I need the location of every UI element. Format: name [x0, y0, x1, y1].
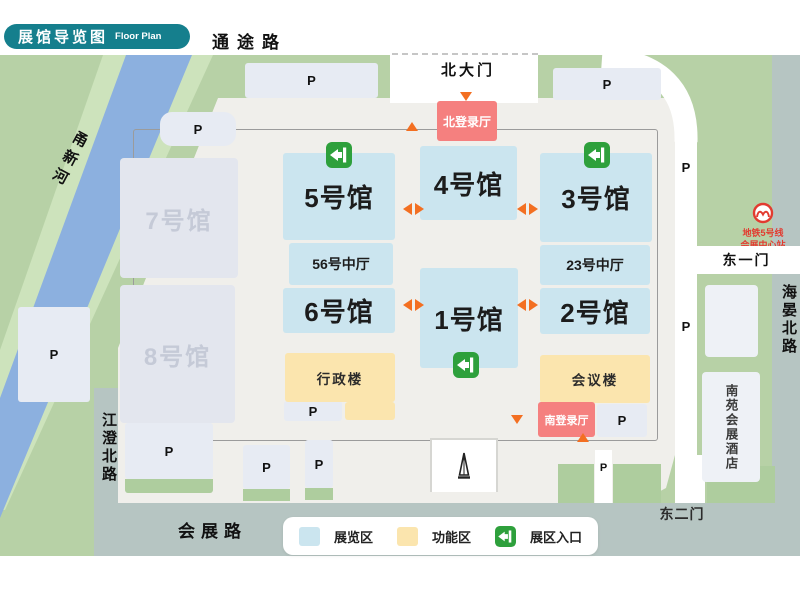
south-parking-strip [595, 450, 612, 503]
page-title: 展馆导览图 [18, 26, 108, 47]
gate-east1-label: 东一门 [723, 250, 771, 270]
arrow-left-icon [517, 299, 526, 311]
arrow-up-south-exit-icon [577, 433, 589, 442]
flow-arrow-6-1 [403, 299, 424, 311]
legend: 展览区 功能区 展区入口 [283, 517, 598, 555]
parking-lot: P [597, 404, 647, 437]
gate-north-label: 北大门 [430, 60, 506, 78]
arrow-right-icon [415, 299, 424, 311]
parking-label-south-strip: P [595, 460, 612, 476]
north-gate-dashed-line [392, 53, 538, 55]
tower-icon [455, 451, 473, 481]
parking-lot: P [284, 401, 342, 421]
parking-label: P [315, 457, 324, 472]
road-south-label: 会展路 [178, 517, 247, 542]
conference-building: 会议楼 [540, 355, 650, 403]
parking-label: P [50, 347, 59, 362]
road-north-label: 通途路 [212, 28, 287, 53]
admin-building: 行政楼 [285, 353, 395, 402]
hall-8: 8号馆 [120, 285, 235, 423]
parking-lot: P [245, 63, 378, 98]
admin-building-ext [345, 402, 395, 420]
hotel-building: 南苑会展酒店 [702, 372, 760, 482]
parking-label-east-north: P [677, 158, 695, 176]
tower-landmark-box [430, 438, 498, 492]
arrow-right-icon [415, 203, 424, 215]
parking-label: P [262, 460, 271, 475]
parking-label-east-south: P [677, 317, 695, 335]
hall-4: 4号馆 [420, 146, 517, 220]
arrow-right-icon [529, 203, 538, 215]
parking-label: P [307, 73, 316, 88]
legend-entrance-icon [495, 526, 516, 547]
arrow-left-icon [403, 203, 412, 215]
flow-arrow-1-2 [517, 299, 538, 311]
entrance-icon-hall3 [584, 142, 610, 168]
parking-green-edge [125, 479, 213, 493]
metro-line: 地铁5号线 [726, 227, 800, 239]
legend-exhibition-label: 展览区 [334, 527, 373, 546]
parking-lot: P [305, 440, 333, 488]
legend-entrance-label: 展区入口 [530, 527, 582, 546]
title-banner: 展馆导览图 Floor Plan [4, 24, 190, 49]
arrow-down-south-entry-icon [511, 415, 523, 424]
green-patch-1 [558, 464, 594, 503]
parking-label: P [194, 122, 203, 137]
hall-56-atrium: 56号中厅 [289, 243, 393, 285]
parking-label: P [309, 404, 318, 419]
floor-plan-map: P P P P P P P P P P P P 7号馆 8号馆 5号馆 56号中… [0, 0, 800, 600]
arrow-left-icon [403, 299, 412, 311]
metro-logo-icon [752, 202, 774, 224]
parking-green-edge [305, 488, 333, 500]
parking-label: P [165, 444, 174, 459]
hall-23-atrium: 23号中厅 [540, 245, 650, 285]
gate-east2-label: 东二门 [656, 505, 708, 523]
legend-function-swatch [397, 527, 418, 546]
flow-arrow-4-3 [517, 203, 538, 215]
hall-6: 6号馆 [283, 288, 395, 333]
arrow-down-north-entry-icon [460, 92, 472, 101]
parking-lot: P [553, 68, 661, 100]
parking-lot: P [243, 445, 290, 489]
road-west-label: 江澄北路 [98, 412, 119, 484]
parking-lot: P [125, 423, 213, 479]
arrow-up-north-exit-icon [406, 122, 418, 131]
hotel-annex [705, 285, 758, 357]
legend-exhibition-swatch [299, 527, 320, 546]
north-registration-hall: 北登录厅 [437, 101, 497, 141]
hall-2: 2号馆 [540, 288, 650, 334]
parking-lot: P [18, 307, 90, 402]
entrance-icon-hall5 [326, 142, 352, 168]
legend-function-label: 功能区 [432, 527, 471, 546]
gate-east1-crossing: 东一门 [693, 246, 800, 274]
green-patch-2 [613, 464, 661, 503]
road-east-label: 海晏北路 [778, 284, 799, 356]
parking-label: P [603, 77, 612, 92]
parking-label: P [618, 413, 627, 428]
hall-7: 7号馆 [120, 158, 238, 278]
parking-lot: P [160, 112, 236, 146]
entrance-icon-hall1 [453, 352, 479, 378]
hotel-name: 南苑会展酒店 [722, 384, 741, 471]
south-registration-hall: 南登录厅 [538, 402, 595, 437]
page-title-en: Floor Plan [115, 31, 161, 42]
flow-arrow-5-4 [403, 203, 424, 215]
arrow-left-icon [517, 203, 526, 215]
arrow-right-icon [529, 299, 538, 311]
parking-green-edge [243, 489, 290, 501]
